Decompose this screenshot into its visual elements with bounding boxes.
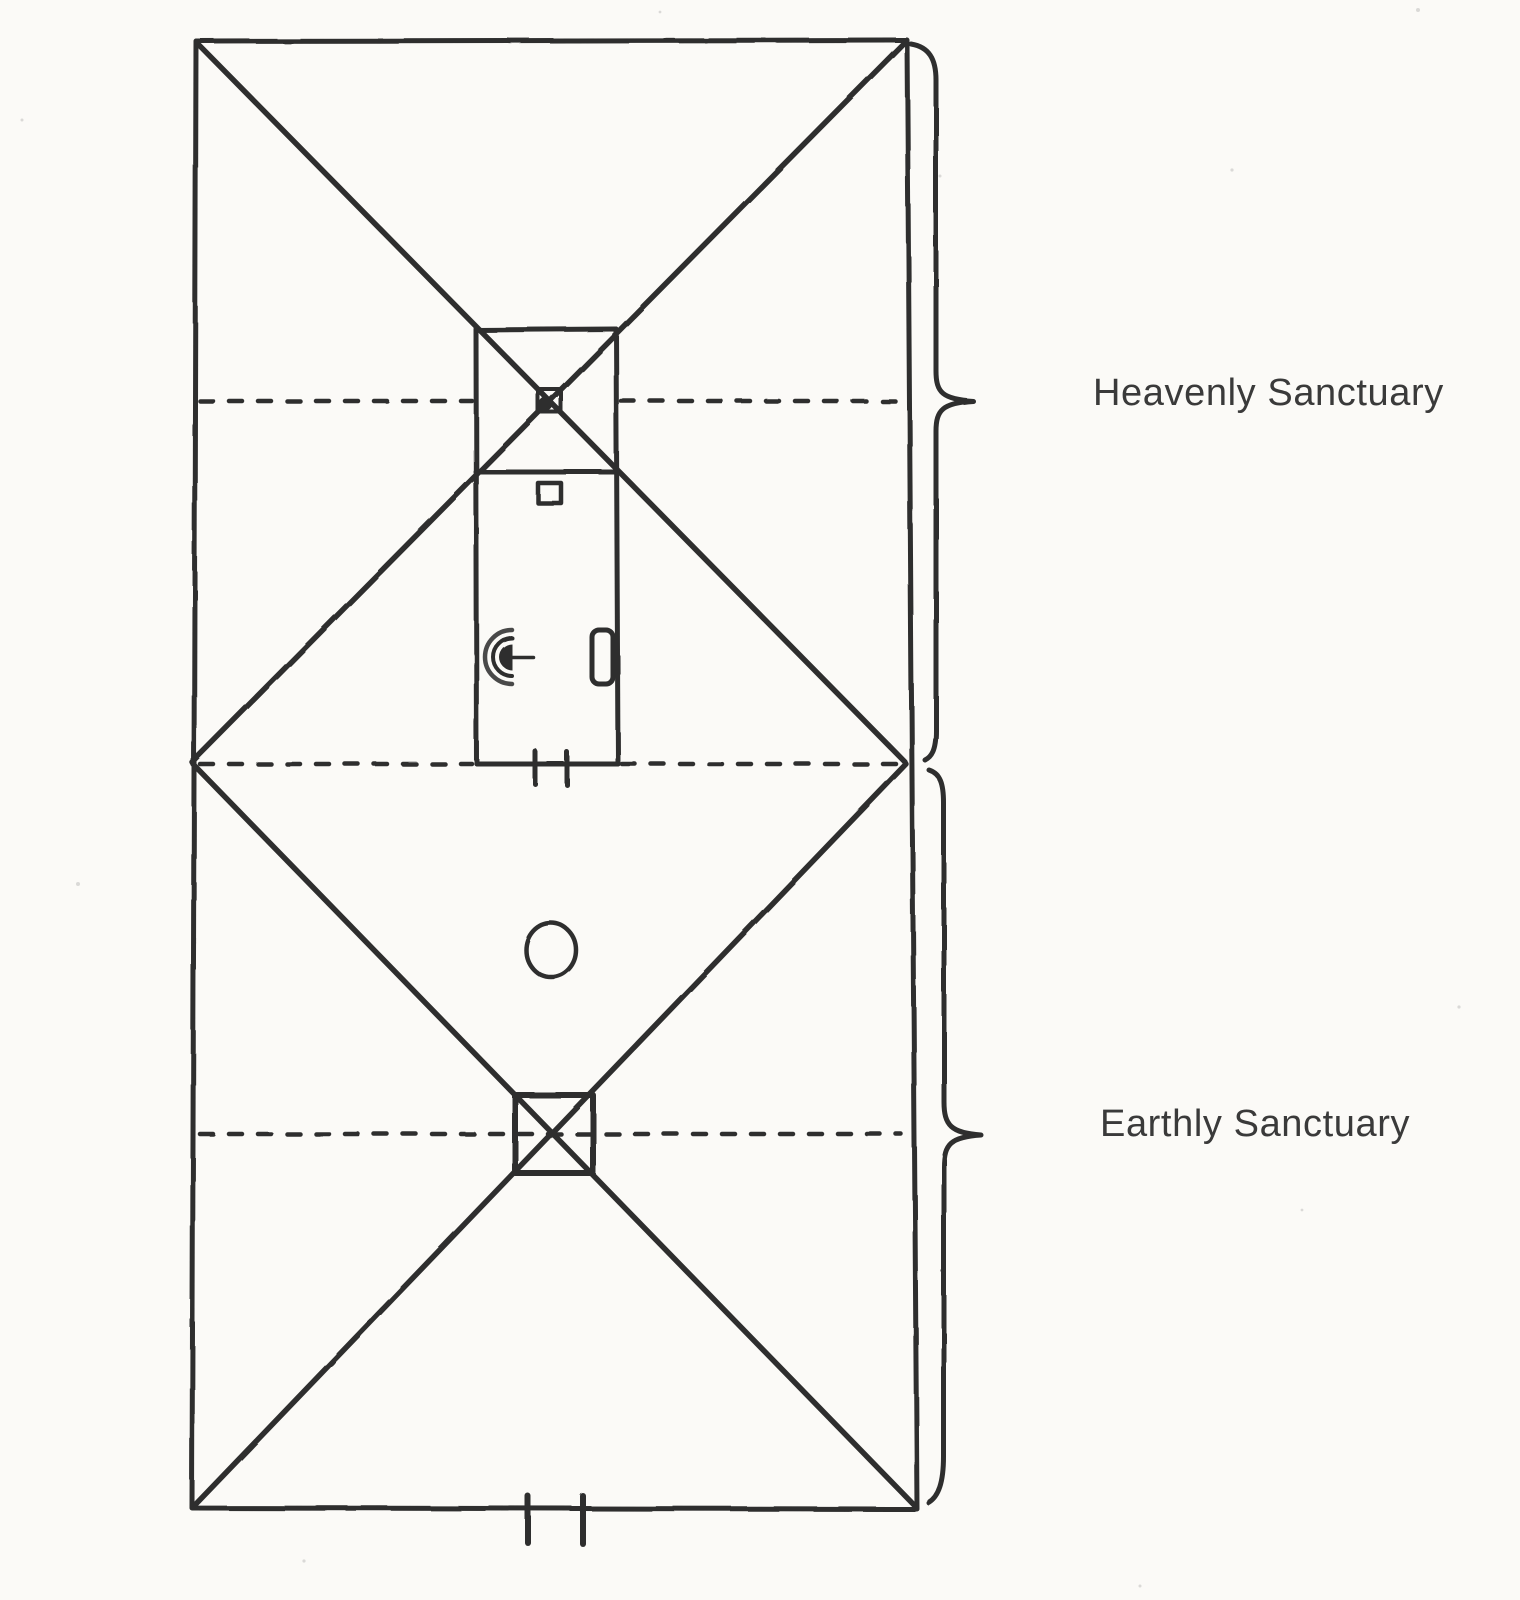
veil-entrance-marks-icon: [535, 751, 567, 785]
holy-place-left-wall: [476, 329, 477, 764]
earthly-brace-icon: [929, 770, 981, 1503]
most-holy-place-room: [476, 329, 616, 330]
sanctuary-diagram: [0, 0, 1520, 1600]
heavenly-sanctuary-label: Heavenly Sanctuary: [1093, 372, 1444, 415]
gate-entrance-marks-icon: [528, 1496, 583, 1544]
scanned-diagram-page: Heavenly Sanctuary Earthly Sanctuary: [0, 0, 1520, 1600]
ark-crossing-blob: [539, 397, 553, 411]
dashed-sight-lines: [200, 401, 901, 1134]
incense-altar-icon: [538, 483, 561, 503]
earthly-sanctuary-label: Earthly Sanctuary: [1100, 1103, 1410, 1146]
holy-place-right-wall: [616, 329, 618, 764]
scan-speckles: [21, 8, 1461, 1588]
outer-court-rectangle: [192, 40, 917, 1509]
lampstand-icon: [485, 630, 533, 684]
laver-circle-icon: [526, 923, 576, 977]
showbread-table-icon: [592, 630, 613, 684]
heavenly-brace-icon: [911, 44, 973, 760]
line-art: [192, 40, 981, 1544]
